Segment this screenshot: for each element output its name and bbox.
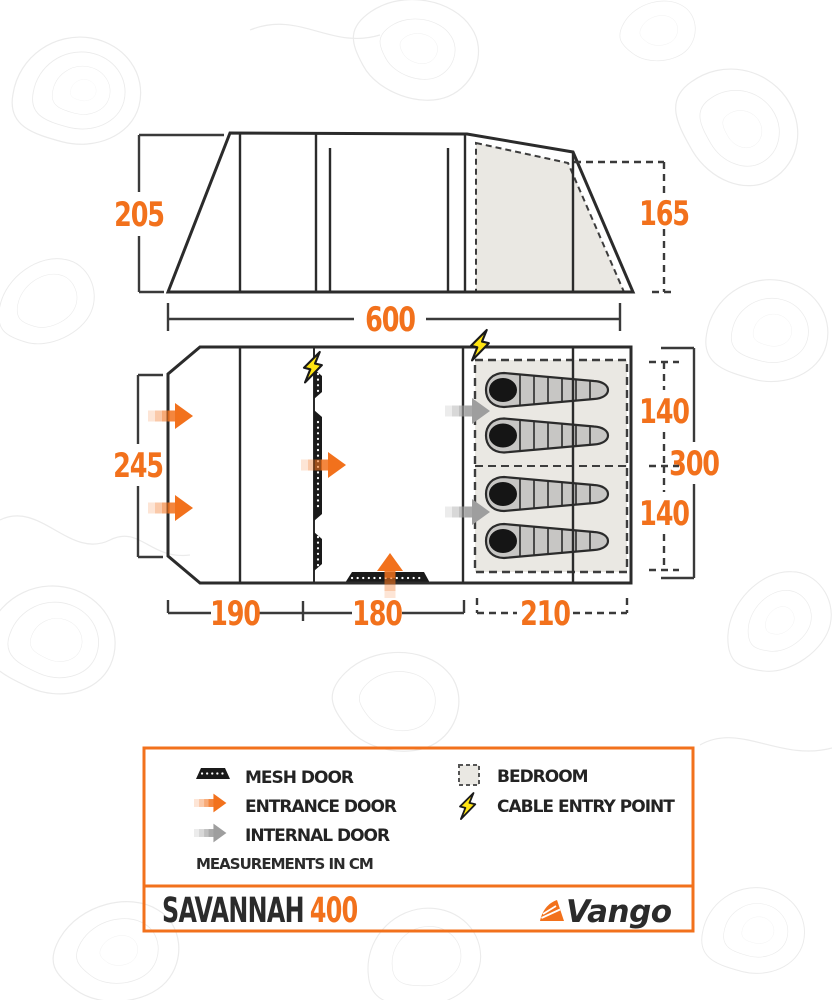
dimension-bottom-sections: 190 180 210: [168, 594, 627, 634]
floor-plan-view: [148, 330, 631, 598]
brand-wordmark: Vango: [566, 894, 672, 930]
tent-spec-sheet: 205 165 600: [0, 0, 832, 1000]
entrance-door-arrows: [148, 403, 403, 598]
vango-logo: Vango: [540, 894, 672, 930]
product-series: SAVANNAH: [162, 890, 304, 931]
legend-label-cable-entry: CABLE ENTRY POINT: [497, 797, 675, 817]
product-title: SAVANNAH400: [162, 890, 358, 931]
dim-total-length-value: 600: [365, 300, 415, 340]
side-elevation-view: [168, 133, 633, 292]
product-model: 400: [310, 890, 358, 931]
legend-label-internal-door: INTERNAL DOOR: [245, 826, 390, 846]
legend-label-mesh-door: MESH DOOR: [245, 768, 354, 788]
dim-front-width-value: 245: [113, 446, 163, 486]
dim-front-height-value: 205: [114, 195, 164, 235]
dim-rear-height-value: 165: [639, 194, 689, 234]
title-bar: SAVANNAH400 Vango: [162, 890, 672, 931]
entrance-door-icon: [194, 794, 226, 813]
dimension-total-length: 600: [168, 300, 620, 340]
dim-bedroom-lower-value: 140: [639, 494, 689, 534]
cable-entry-point-icon: [460, 793, 475, 819]
dimension-front-width: 245: [113, 375, 163, 557]
mesh-door-icon: [196, 768, 230, 779]
dim-porch-section-value: 190: [210, 594, 260, 634]
dim-rear-width-value: 300: [669, 444, 719, 484]
tent-floorplan-diagram: 205 165 600: [0, 0, 832, 1000]
dim-bedroom-upper-value: 140: [639, 392, 689, 432]
topo-contour-background: [0, 0, 832, 1000]
dim-bedroom-section-value: 210: [520, 594, 570, 634]
bedroom-icon: [459, 765, 479, 785]
legend-label-bedroom: BEDROOM: [497, 767, 588, 787]
internal-door-icon: [194, 824, 226, 843]
dimension-front-height: 205: [114, 135, 224, 292]
dim-living-section-value: 180: [352, 594, 402, 634]
legend-measurements-note: MEASUREMENTS IN CM: [196, 855, 373, 873]
dimension-rear-width: 300: [661, 348, 719, 578]
legend-label-entrance-door: ENTRANCE DOOR: [245, 797, 397, 817]
